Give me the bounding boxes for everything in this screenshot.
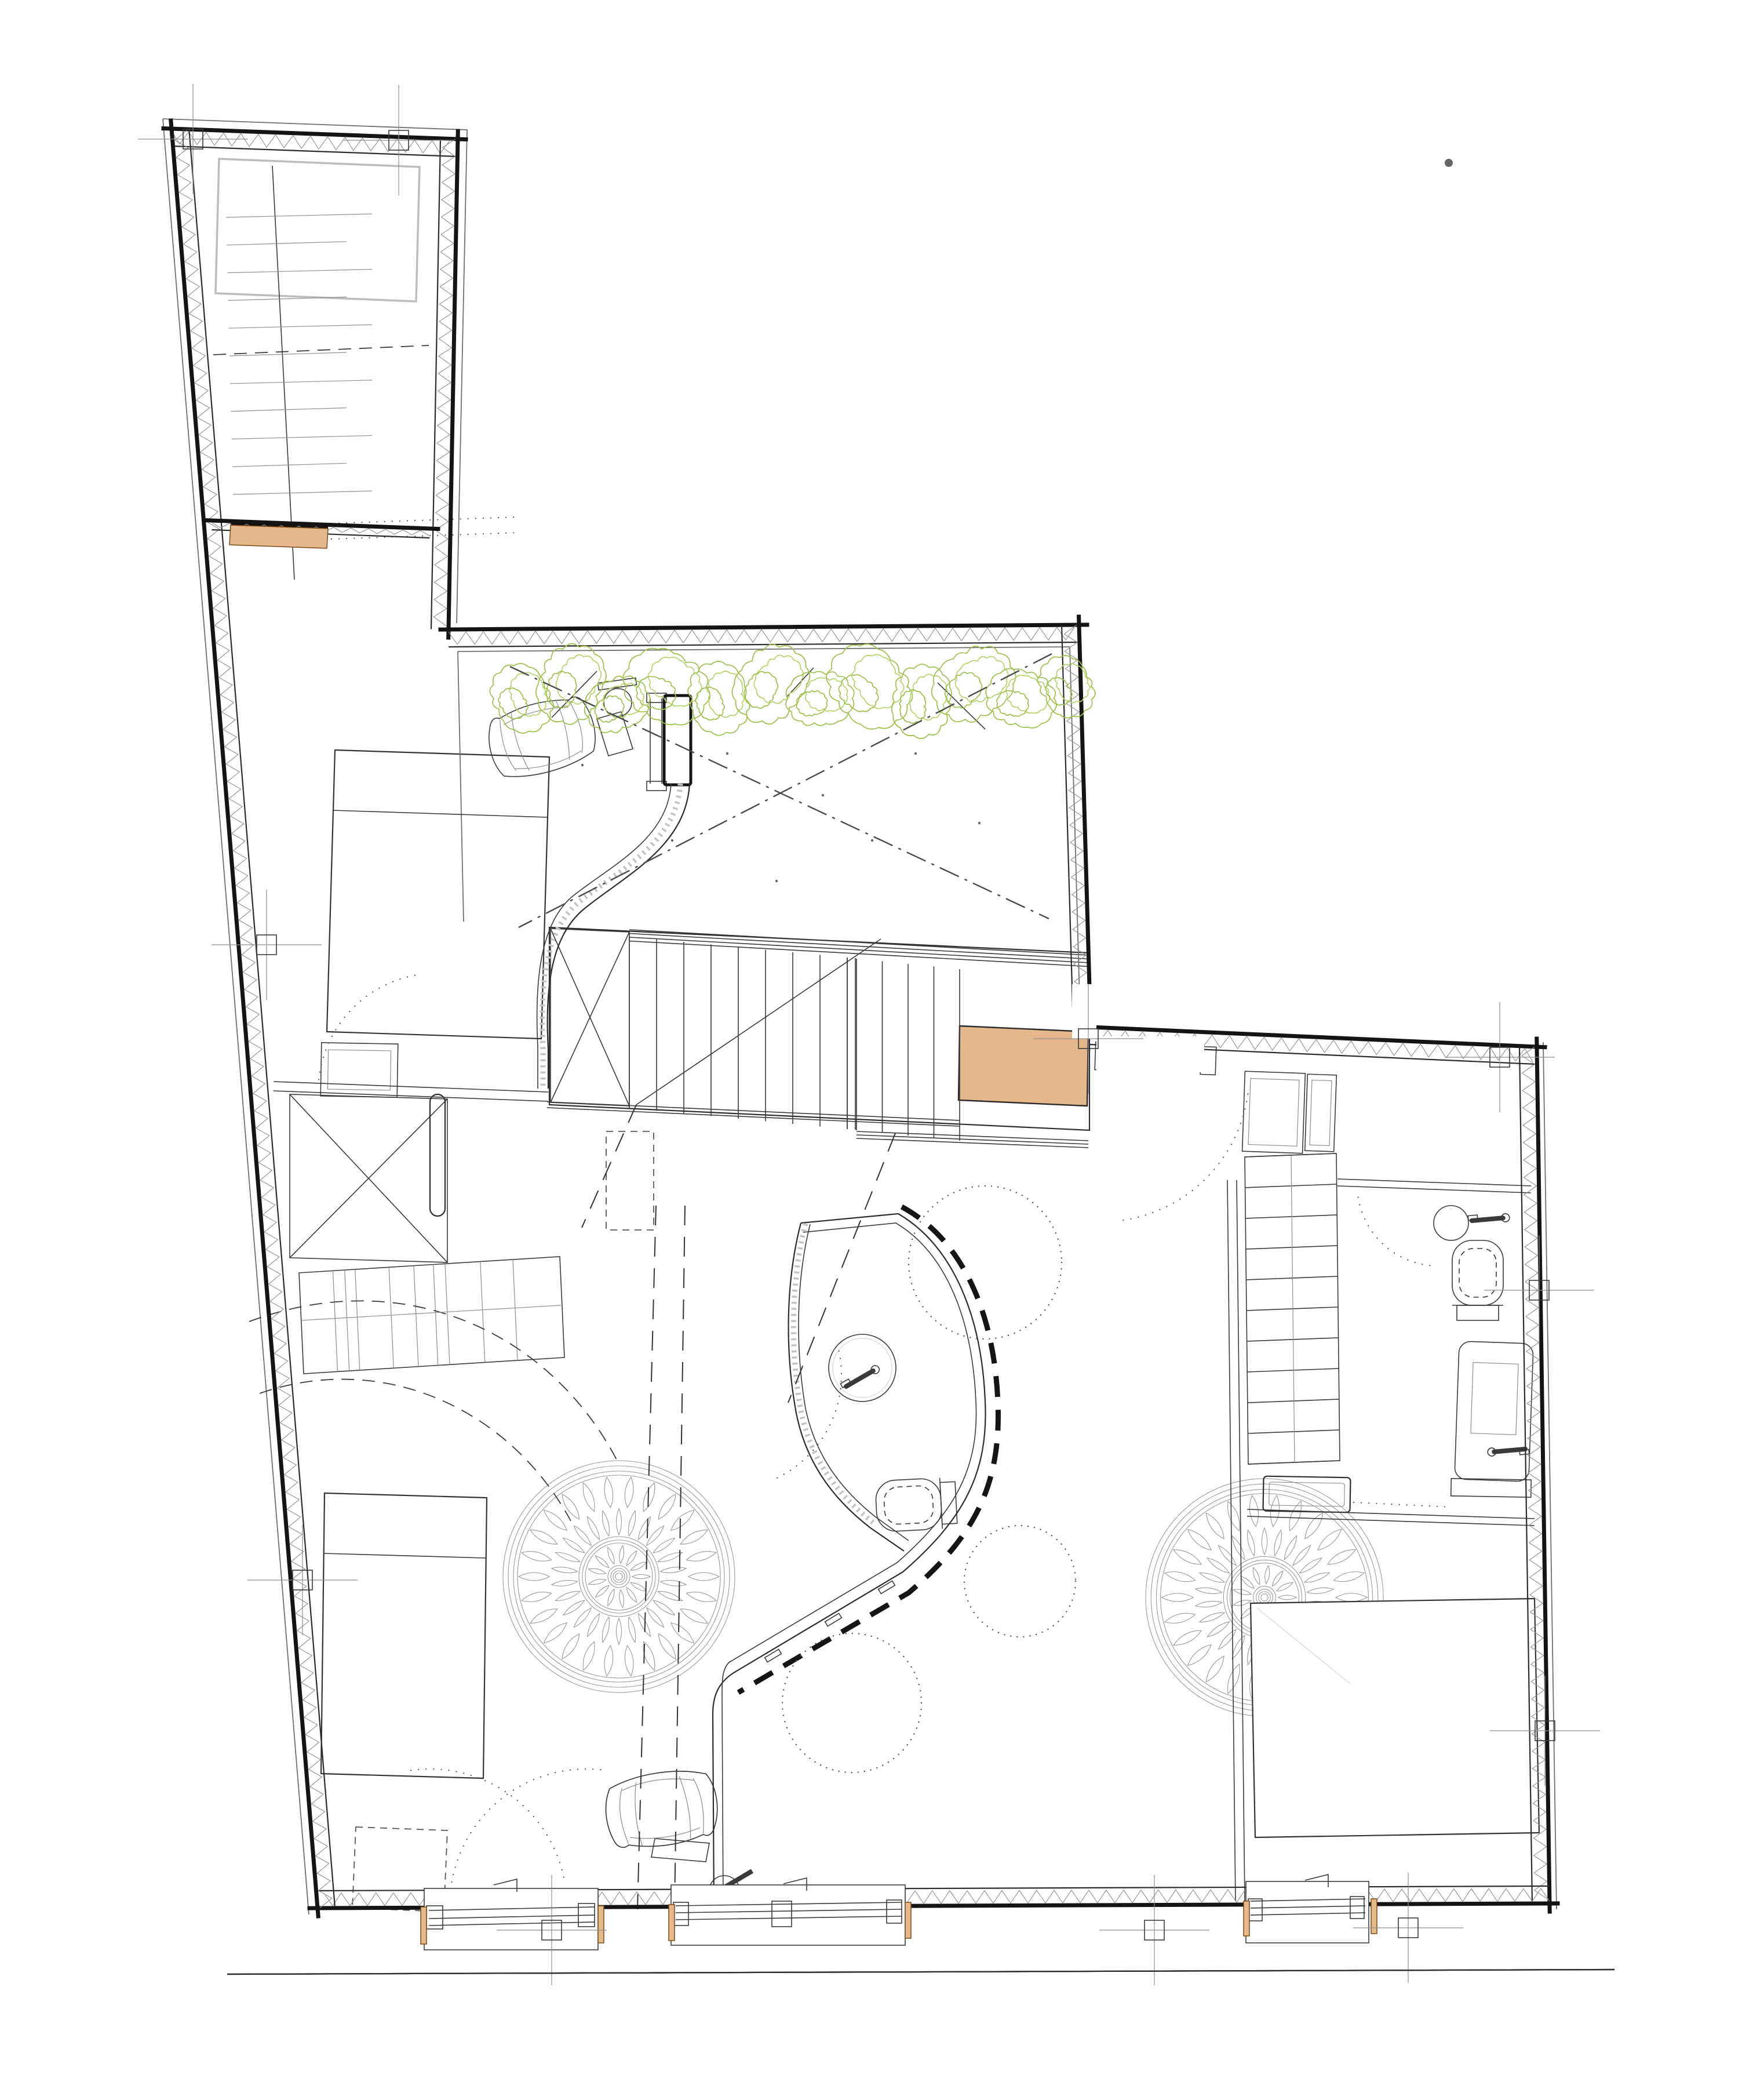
structural-column (1484, 1235, 1594, 1345)
ceiling-rose-mandalas (503, 1461, 1383, 1716)
bay-left (424, 1888, 598, 1950)
tap-faucet (1468, 1212, 1510, 1225)
tap-faucet (840, 1363, 880, 1392)
exterior-wall (440, 625, 1087, 647)
structural-column (344, 85, 454, 195)
bay-center (671, 1885, 905, 1945)
structural-column (138, 84, 248, 194)
exterior-wall (171, 121, 335, 1916)
exterior-wall (1062, 617, 1091, 1035)
exterior-wall (163, 128, 466, 156)
shrub-planting (892, 664, 952, 738)
armchair-wireframe (602, 1766, 722, 1853)
exterior-wall (431, 131, 458, 638)
floor-plan-page (0, 0, 1764, 2082)
bay-right (1246, 1881, 1369, 1943)
toilet (875, 1477, 957, 1532)
structural-column (1353, 1873, 1463, 1983)
courtyard-planting (490, 643, 1095, 927)
furniture (216, 159, 1539, 1912)
floor-plan (0, 0, 1764, 2082)
shrub-planting (490, 664, 553, 733)
terrace-door-sill (229, 525, 328, 548)
shrub-planting (932, 646, 1016, 722)
mandala-ceiling-rose (503, 1461, 735, 1692)
structural-column (212, 890, 322, 1000)
shrub-planting (826, 644, 912, 729)
bath-fixtures (829, 1206, 1529, 1532)
shrub-planting (986, 669, 1056, 728)
tap-faucet (1488, 1445, 1529, 1458)
toilet (1452, 1240, 1503, 1320)
shrub-planting (585, 676, 650, 733)
structural-column (1099, 1875, 1209, 1985)
